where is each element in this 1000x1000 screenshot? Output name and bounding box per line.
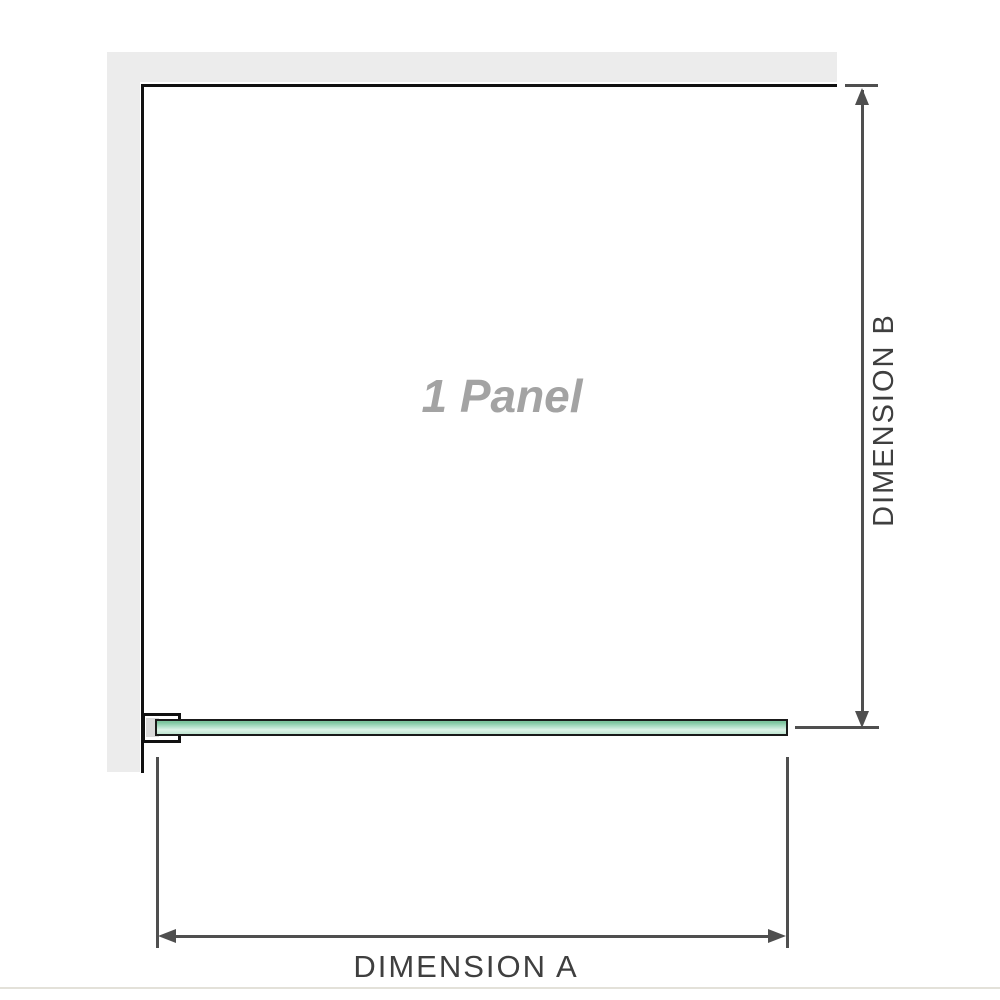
dimension-a-left-extension — [156, 757, 159, 948]
arrow-down-icon — [855, 711, 869, 728]
wall-left-segment — [107, 52, 140, 772]
footer-rule — [0, 987, 1000, 989]
arrow-left-icon — [158, 929, 176, 943]
wall-top-segment — [107, 52, 837, 82]
dimension-b-label: DIMENSION B — [867, 280, 901, 560]
panel-diagram: 1 Panel DIMENSION B DIMENSION A — [0, 0, 1000, 1000]
panel-top-edge — [141, 84, 837, 87]
panel-count-label: 1 Panel — [352, 368, 652, 424]
dimension-a-line — [164, 935, 780, 938]
arrow-up-icon — [855, 88, 869, 105]
dimension-b-line — [861, 90, 864, 722]
panel-left-edge — [141, 84, 144, 773]
glass-panel-bar — [155, 719, 788, 736]
arrow-right-icon — [768, 929, 786, 943]
dimension-b-top-tick — [845, 84, 878, 87]
dimension-a-label: DIMENSION A — [316, 949, 616, 985]
dimension-a-right-extension — [786, 757, 789, 948]
